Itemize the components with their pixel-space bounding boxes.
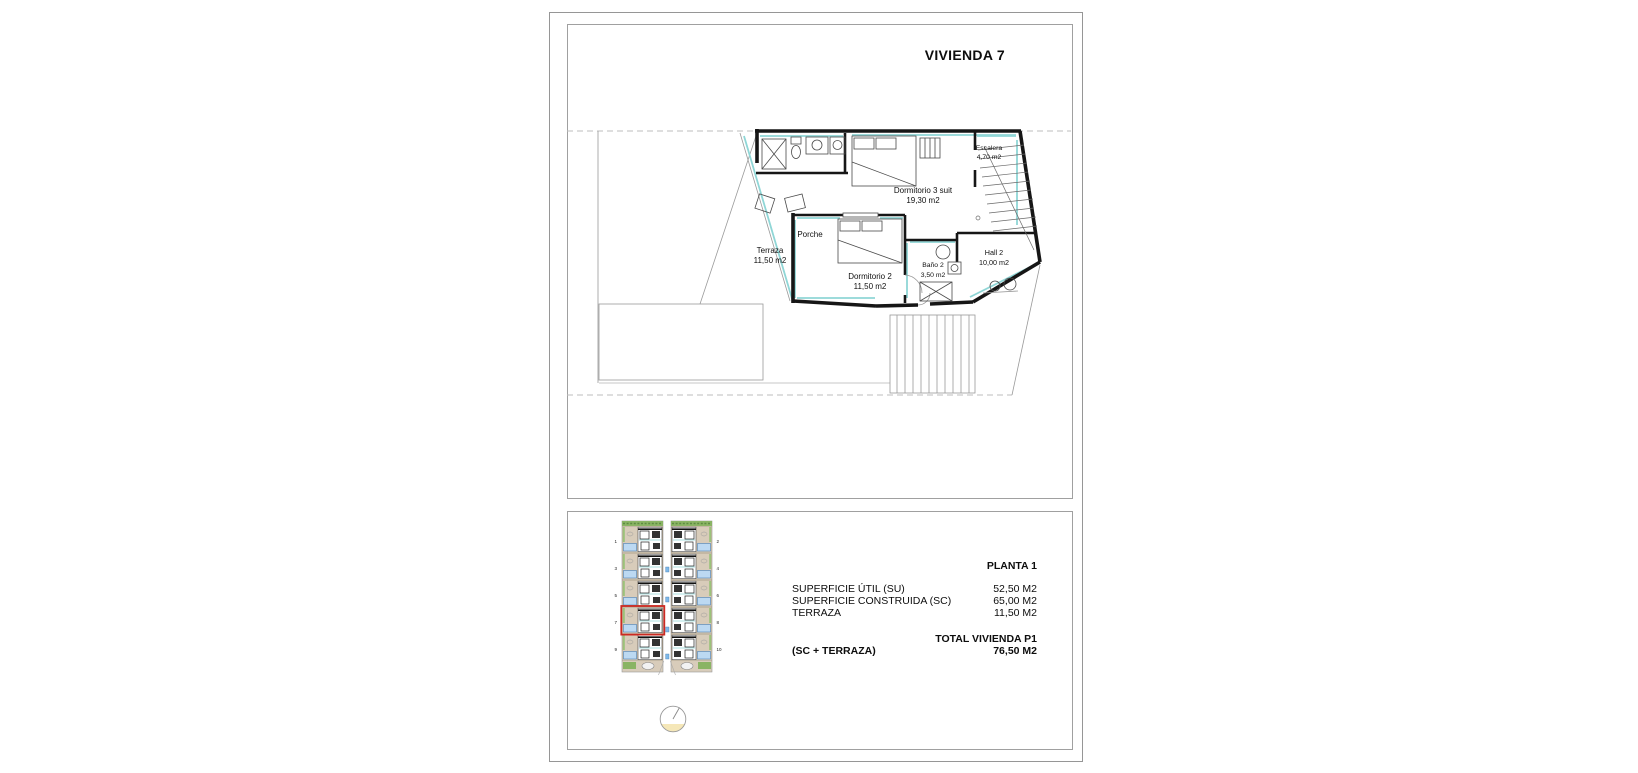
room-area-escalera: 4,70 m2 (977, 154, 1002, 161)
room-label-terraza: Terraza (757, 246, 784, 255)
svg-text:3: 3 (614, 566, 617, 571)
summary-total-label: TOTAL VIVIENDA P1 (900, 633, 1037, 645)
plan-sheet-page: VIVIENDA 7 (0, 0, 1638, 773)
svg-text:2: 2 (717, 539, 720, 544)
summary-row-value: 52,50 M2 (900, 583, 1037, 595)
site-map: 1 3 5 7 9 2 4 6 8 10 (614, 521, 722, 676)
svg-text:6: 6 (717, 593, 720, 598)
room-label-escalera: Escalera (976, 145, 1003, 152)
svg-text:1: 1 (614, 539, 617, 544)
summary-total-sublabel: (SC + TERRAZA) (792, 645, 876, 657)
bed-dormitorio-3 (852, 136, 940, 186)
room-area-bano2: 3,50 m2 (921, 272, 946, 279)
car-icon (681, 663, 693, 670)
summary-total-value: 76,50 M2 (900, 645, 1037, 657)
summary-row-value: 65,00 M2 (900, 595, 1037, 607)
site-road (664, 521, 671, 672)
site-plan-drawing: 1 3 5 7 9 2 4 6 8 10 (567, 511, 1071, 748)
svg-text:5: 5 (614, 593, 617, 598)
car-icon (642, 663, 654, 670)
bathroom-fixtures (762, 137, 845, 169)
room-label-dormitorio-3: Dormitorio 3 suit (894, 186, 953, 195)
bed-dormitorio-2 (838, 219, 902, 263)
room-label-dormitorio-2: Dormitorio 2 (848, 272, 892, 281)
room-label-hall2: Hall 2 (985, 248, 1003, 257)
deck-hatch-area (890, 315, 975, 393)
summary-row-value: 11,50 M2 (900, 607, 1037, 619)
summary-row-label: TERRAZA (792, 607, 841, 619)
room-area-dormitorio-3: 19,30 m2 (906, 196, 940, 205)
room-area-dormitorio-2: 11,50 m2 (854, 282, 887, 291)
svg-text:7: 7 (614, 620, 617, 625)
room-area-hall2: 10,00 m2 (979, 258, 1009, 267)
compass-icon (660, 706, 686, 732)
patio-pool-rectangle (599, 304, 763, 380)
room-label-bano2: Baño 2 (922, 262, 944, 269)
svg-text:9: 9 (614, 647, 617, 652)
summary-row-label: SUPERFICIE ÚTIL (SU) (792, 583, 905, 595)
summary-heading: PLANTA 1 (900, 560, 1037, 572)
svg-text:8: 8 (717, 620, 720, 625)
room-area-terraza: 11,50 m2 (754, 256, 787, 265)
floor-plan-drawing: Escalera 4,70 m2 Dormitorio 3 suit 19,30… (567, 24, 1071, 497)
room-label-porche: Porche (797, 230, 823, 239)
svg-text:4: 4 (717, 566, 720, 571)
svg-text:10: 10 (717, 647, 723, 652)
